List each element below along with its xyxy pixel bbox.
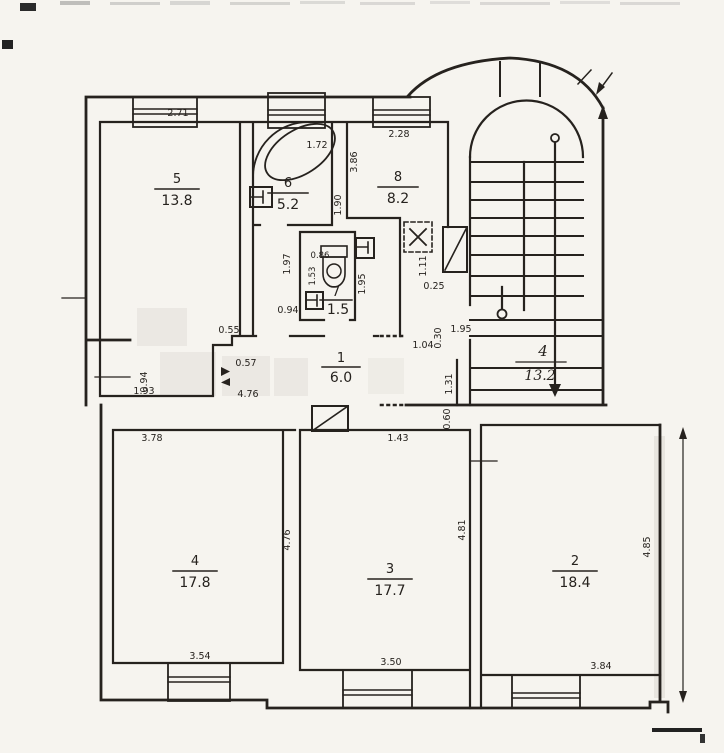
room-3-label: 3 17.7 (368, 562, 412, 599)
room-1-label: 1 6.0 (322, 351, 360, 386)
room-4-label: 4 17.8 (173, 554, 217, 591)
window-room2 (512, 675, 580, 708)
svg-text:6.0: 6.0 (330, 370, 352, 386)
dim-r4-top: 3.78 (141, 433, 162, 444)
room-5-area: 13.8 (161, 193, 192, 209)
svg-text:6: 6 (284, 176, 292, 191)
svg-text:18.4: 18.4 (559, 575, 590, 591)
svg-text:17.7: 17.7 (374, 583, 405, 599)
radiator-icon-hall (356, 238, 374, 258)
hatch-icon (312, 406, 348, 431)
room-5-number: 5 (173, 172, 181, 187)
svg-text:8: 8 (394, 170, 402, 185)
dim-landing-right: 1.31 (444, 373, 455, 394)
dim-gap: 0.60 (442, 408, 453, 429)
svg-text:4: 4 (191, 554, 199, 569)
dim-wc-right: 1.95 (357, 273, 368, 294)
dim-r4-right: 4.76 (282, 529, 293, 550)
duct-icon (443, 227, 467, 272)
stair-treads (470, 162, 603, 390)
dim-r5-top: 2.71 (167, 108, 188, 119)
svg-text:4: 4 (537, 342, 548, 360)
dim-r3-right: 4.81 (457, 519, 468, 540)
arch-tick (578, 70, 612, 88)
dim-wc-outer-left: 1.97 (282, 253, 293, 274)
room-8-label: 8 8.2 (378, 170, 418, 207)
scanned-floor-plan-page: 5 13.8 6 5.2 8 8.2 7 1.5 1 6.0 4 17.8 3 … (0, 0, 724, 753)
floor-plan-drawing: 5 13.8 6 5.2 8 8.2 7 1.5 1 6.0 4 17.8 3 … (0, 0, 724, 753)
dim-hall-width: 4.76 (237, 389, 258, 400)
dim-r8-left: 3.86 (349, 151, 360, 172)
dimension-arrow-right (679, 427, 687, 703)
room-7-label: 7 1.5 (320, 285, 352, 318)
wall-arrow-up (598, 105, 608, 119)
dim-landing-door: 1.95 (450, 324, 471, 335)
svg-text:13.2: 13.2 (524, 368, 555, 384)
svg-text:8.2: 8.2 (387, 191, 409, 207)
room-5-label: 5 13.8 (155, 172, 199, 209)
dim-door-jamb: 0.30 (433, 327, 444, 348)
svg-text:5.2: 5.2 (277, 197, 299, 213)
svg-text:1: 1 (337, 351, 345, 366)
svg-text:3: 3 (386, 562, 394, 577)
dim-door-w: 1.04 (412, 340, 433, 351)
interior-walls (100, 122, 660, 708)
dim-hatch-w: 1.43 (387, 433, 408, 444)
svg-text:2: 2 (571, 554, 579, 569)
dim-r6-right: 1.90 (333, 194, 344, 215)
dim-shaft: 0.25 (423, 281, 444, 292)
svg-text:1.5: 1.5 (327, 302, 349, 318)
stairwell-handwritten-label: 4 13.2 (516, 342, 566, 384)
dim-r5-bottom: 1.93 (133, 386, 154, 397)
dim-step-top: 0.55 (218, 325, 239, 336)
room-2-label: 2 18.4 (553, 554, 597, 591)
window-room4 (168, 663, 230, 701)
dim-r3-bottom: 3.50 (380, 657, 401, 668)
dim-r2-right: 4.85 (642, 536, 653, 557)
dim-duct: 1.11 (418, 255, 429, 276)
watermark (137, 308, 404, 396)
vent-shaft-icon (404, 222, 432, 252)
dim-wc-left: 1.53 (308, 267, 318, 286)
dim-wc-door: 0.94 (277, 305, 298, 316)
dim-r2-bottom: 3.84 (590, 661, 611, 672)
room-6-label: 6 5.2 (268, 176, 308, 213)
svg-text:17.8: 17.8 (179, 575, 210, 591)
dim-niche: 0.57 (235, 358, 256, 369)
dim-wc-top: 0.86 (311, 251, 330, 261)
window-room3 (343, 670, 412, 708)
dim-r4-bottom: 3.54 (189, 651, 210, 662)
svg-text:7: 7 (332, 285, 340, 300)
scan-artifacts (2, 1, 705, 743)
dim-r8-top: 2.28 (388, 129, 409, 140)
dim-r6-tub: 1.72 (306, 140, 327, 151)
